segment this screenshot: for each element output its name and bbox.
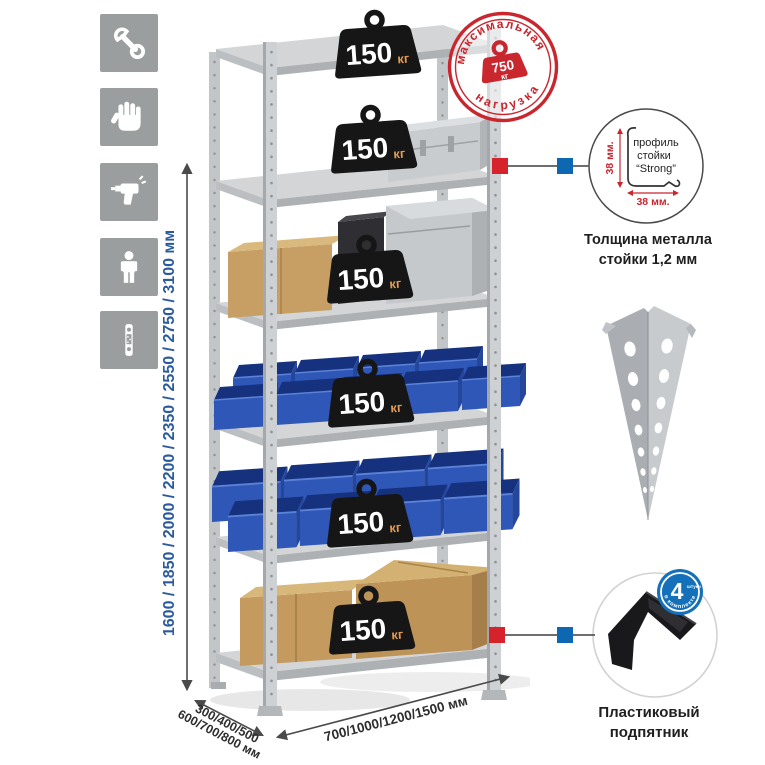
- drill-icon: [100, 163, 158, 221]
- foot-plate: [257, 706, 283, 716]
- foot-plate: [481, 690, 507, 700]
- height-dimension-label: 1600 / 1850 / 2000 / 2200 / 2350 / 2550 …: [161, 230, 178, 636]
- badge-word: штуки: [687, 584, 701, 589]
- weight-unit: кг: [391, 627, 405, 643]
- profile-caption-line2: стойки 1,2 мм: [560, 251, 736, 271]
- weight-value: 150: [340, 132, 389, 166]
- foot-caption: Пластиковый подпятник: [566, 703, 732, 744]
- profile-dim-horizontal: 38 мм.: [636, 196, 669, 208]
- profile-label-3: “Strong”: [636, 163, 676, 175]
- angle-post-photo: [594, 296, 704, 530]
- profile-dim-vertical: 38 мм.: [604, 141, 616, 174]
- post-profile-detail: 38 мм. 38 мм. профиль стойки “Strong”: [586, 106, 706, 226]
- foot-caption-line1: Пластиковый: [566, 703, 732, 723]
- profile-label-1: профиль: [633, 137, 679, 149]
- person-icon: [100, 238, 158, 296]
- load-weights: 150 кг 150 кг 150 кг 150 кг: [323, 10, 422, 655]
- profile-caption-line1: Толщина металла: [560, 231, 736, 251]
- included-quantity-badge: 4 штуки в комплекте: [656, 568, 704, 616]
- weight-badge: 150 кг: [331, 10, 422, 79]
- post-profile-glyph: [110, 321, 148, 359]
- gloves-glyph: [110, 98, 148, 136]
- connector-blue-marker-top: [557, 158, 573, 174]
- gloves-icon: [100, 88, 158, 146]
- wrench-glyph: [110, 24, 148, 62]
- weight-value: 150: [336, 506, 385, 540]
- wrench-icon: [100, 14, 158, 72]
- weight-unit: кг: [389, 520, 403, 536]
- weight-value: 150: [338, 613, 387, 647]
- weight-value: 150: [336, 262, 385, 296]
- profile-label-2: стойки: [637, 150, 671, 162]
- person-glyph: [110, 248, 148, 286]
- connector-blue-marker-bottom: [557, 627, 573, 643]
- weight-value: 150: [344, 37, 393, 71]
- weight-unit: кг: [390, 400, 404, 416]
- post-profile-icon: [100, 311, 158, 369]
- weight-unit: кг: [393, 146, 407, 162]
- floor-shadow: [210, 689, 410, 711]
- drill-glyph: [110, 173, 148, 211]
- weight-unit: кг: [389, 276, 403, 292]
- max-load-stamp: максимальная нагрузка 750 кг: [444, 8, 562, 126]
- profile-caption: Толщина металла стойки 1,2 мм: [560, 231, 736, 270]
- shelving-infographic: 150 кг 150 кг 150 кг 150 кг: [0, 0, 765, 765]
- weight-value: 150: [337, 386, 386, 420]
- badge-number: 4: [671, 578, 684, 604]
- weight-badge: 150 кг: [327, 105, 418, 174]
- weight-unit: кг: [397, 51, 411, 67]
- foot-caption-line2: подпятник: [566, 723, 732, 743]
